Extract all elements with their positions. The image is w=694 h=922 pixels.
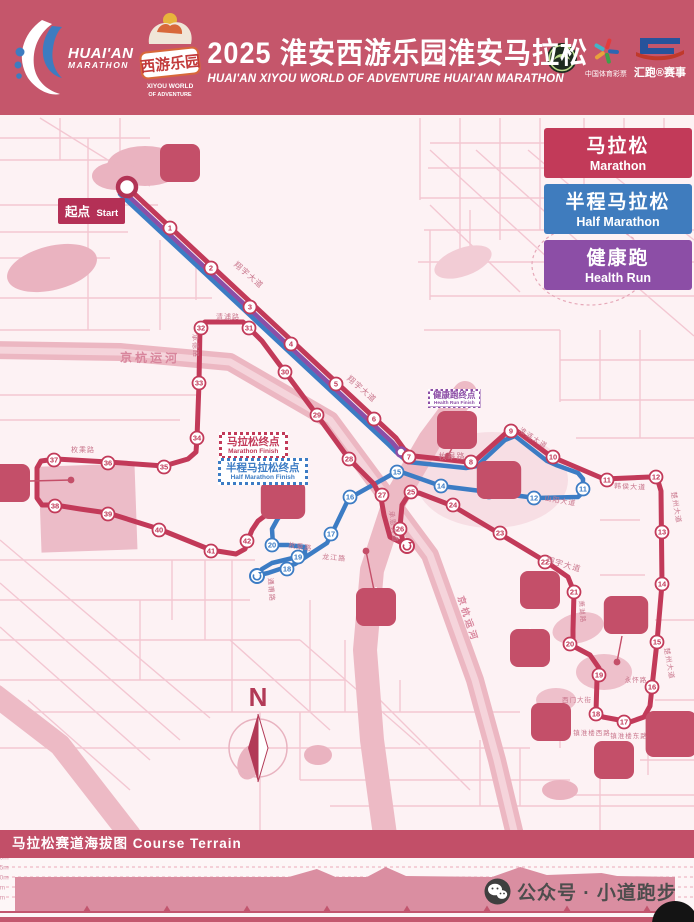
svg-text:24: 24 — [449, 501, 458, 510]
logo-line1: HUAI'AN — [68, 46, 133, 61]
xiyou-name-en2: OF ADVENTURE — [149, 92, 193, 98]
start-point — [118, 178, 136, 196]
event-title-en: HUAI'AN XIYOU WORLD OF ADVENTURE HUAI'AN… — [207, 73, 539, 85]
legend-marathon-cn: 马拉松 — [544, 131, 692, 158]
terrain-section: 马拉松赛道海拔图 Course Terrain 20m15m10m5m0m 公众… — [0, 830, 694, 922]
start-label: 起点 Start — [58, 198, 125, 224]
legend-health-cn: 健康跑 — [544, 243, 692, 270]
legend-health-run: 健康跑 Health Run — [544, 240, 692, 290]
km-marker-24: 24 — [447, 499, 460, 512]
bottom-strip — [0, 917, 694, 922]
km-marker-31: 31 — [243, 322, 256, 335]
km-marker-20: 20 — [266, 539, 279, 552]
svg-text:29: 29 — [313, 411, 321, 420]
km-marker-8: 8 — [465, 456, 478, 469]
svg-text:13: 13 — [658, 528, 666, 537]
sports-lottery-logo: 中国体育彩票 — [585, 37, 627, 79]
route-legend: 马拉松 Marathon 半程马拉松 Half Marathon 健康跑 Hea… — [544, 128, 692, 296]
km-marker-39: 39 — [102, 508, 115, 521]
km-marker-6: 6 — [368, 413, 381, 426]
svg-text:15: 15 — [653, 638, 661, 647]
sports-lottery-icon — [589, 37, 623, 67]
svg-text:39: 39 — [104, 510, 112, 519]
km-marker-2: 2 — [205, 262, 218, 275]
svg-text:18: 18 — [283, 565, 291, 574]
km-marker-14: 14 — [656, 578, 669, 591]
svg-text:19: 19 — [595, 671, 603, 680]
huaian-marathon-logo: HUAI'AN MARATHON — [8, 12, 133, 104]
huipao-label: 汇跑®赛事 — [634, 64, 686, 80]
header-banner: HUAI'AN MARATHON 西游乐园 XIYOU WORLD OF ADV… — [0, 0, 694, 115]
km-marker-19: 19 — [292, 551, 305, 564]
legend-half-en: Half Marathon — [544, 215, 692, 229]
km-marker-15: 15 — [651, 636, 664, 649]
km-marker-3: 3 — [244, 301, 257, 314]
road-label: 永怀路 — [625, 675, 648, 684]
km-marker-21: 21 — [568, 586, 581, 599]
svg-text:20: 20 — [268, 541, 276, 550]
svg-text:1: 1 — [168, 224, 172, 233]
km-marker-16: 16 — [344, 491, 357, 504]
km-marker-1: 1 — [164, 222, 177, 235]
terrain-title: 马拉松赛道海拔图 Course Terrain — [0, 830, 694, 858]
svg-text:36: 36 — [104, 459, 112, 468]
legend-half-cn: 半程马拉松 — [544, 187, 692, 214]
km-marker-34: 34 — [191, 432, 204, 445]
svg-text:8: 8 — [469, 458, 473, 467]
half-finish-cn: 半程马拉松终点 — [226, 462, 300, 474]
svg-text:23: 23 — [496, 529, 504, 538]
svg-text:17: 17 — [327, 530, 335, 539]
health-finish-cn: 健康跑终点 — [433, 391, 476, 401]
svg-text:41: 41 — [207, 547, 215, 556]
km-marker-38: 38 — [49, 500, 62, 513]
km-marker-36: 36 — [102, 457, 115, 470]
terrain-tick-label: 20m — [0, 858, 9, 862]
svg-text:18: 18 — [592, 710, 600, 719]
huipao-logo: 汇跑®赛事 — [634, 36, 686, 80]
km-marker-18: 18 — [281, 563, 294, 576]
svg-text:16: 16 — [648, 683, 656, 692]
svg-text:11: 11 — [579, 485, 587, 494]
svg-text:7: 7 — [407, 453, 411, 462]
km-marker-42: 42 — [241, 535, 254, 548]
svg-text:27: 27 — [378, 491, 386, 500]
start-label-cn: 起点 — [65, 205, 90, 219]
svg-text:37: 37 — [50, 456, 58, 465]
legend-marathon-en: Marathon — [544, 159, 692, 173]
terrain-tick-label: 10m — [0, 875, 9, 882]
km-marker-19: 19 — [593, 669, 606, 682]
km-marker-12: 12 — [528, 492, 541, 505]
km-marker-37: 37 — [48, 454, 61, 467]
km-marker-15: 15 — [391, 466, 404, 479]
start-label-en: Start — [96, 208, 118, 219]
svg-text:33: 33 — [195, 379, 203, 388]
km-marker-9: 9 — [505, 425, 518, 438]
svg-text:30: 30 — [281, 368, 289, 377]
road-label: 京杭运河 — [120, 349, 180, 365]
km-marker-14: 14 — [435, 480, 448, 493]
svg-text:16: 16 — [346, 493, 354, 502]
event-title-cn: 2025 淮安西游乐园淮安马拉松 — [207, 29, 539, 71]
course-map: 1234567891011121314151617181920212223242… — [0, 115, 694, 830]
svg-text:5: 5 — [334, 380, 338, 389]
km-marker-29: 29 — [311, 409, 324, 422]
terrain-tick-label: 0m — [0, 895, 5, 902]
km-marker-41: 41 — [205, 545, 218, 558]
km-marker-11: 11 — [601, 474, 614, 487]
svg-text:2: 2 — [209, 264, 213, 273]
svg-text:32: 32 — [197, 324, 205, 333]
km-marker-13: 13 — [656, 526, 669, 539]
svg-text:17: 17 — [620, 718, 628, 727]
road-label: 镇淮楼西路 — [573, 728, 611, 737]
km-marker-11: 11 — [577, 483, 590, 496]
road-label: 枚乘路 — [71, 445, 95, 454]
compass-letter: N — [249, 682, 268, 712]
km-marker-7: 7 — [403, 451, 416, 464]
km-marker-16: 16 — [646, 681, 659, 694]
runner-swoosh-icon — [8, 12, 66, 104]
svg-text:34: 34 — [193, 434, 202, 443]
half-turnaround-icon — [250, 569, 264, 583]
road-label: 西门大街 — [562, 695, 592, 704]
svg-text:38: 38 — [51, 502, 59, 511]
svg-text:6: 6 — [372, 415, 376, 424]
svg-text:25: 25 — [407, 488, 415, 497]
health-finish-en: Health Run Finish — [433, 401, 476, 406]
km-marker-10: 10 — [547, 451, 560, 464]
svg-text:15: 15 — [393, 468, 401, 477]
legend-marathon: 马拉松 Marathon — [544, 128, 692, 178]
wechat-icon — [484, 878, 511, 905]
km-marker-20: 20 — [564, 638, 577, 651]
km-marker-27: 27 — [376, 489, 389, 502]
half-finish-en: Half Marathon Finish — [226, 474, 300, 481]
svg-text:42: 42 — [243, 537, 251, 546]
svg-text:28: 28 — [345, 455, 353, 464]
svg-text:35: 35 — [160, 463, 168, 472]
km-marker-32: 32 — [195, 322, 208, 335]
km-marker-40: 40 — [153, 524, 166, 537]
xiyou-name-en1: XIYOU WORLD — [147, 83, 194, 90]
marathon-finish-en: Marathon Finish — [227, 448, 280, 455]
svg-text:14: 14 — [658, 580, 667, 589]
svg-text:20: 20 — [566, 640, 574, 649]
xiyou-world-logo: 西游乐园 XIYOU WORLD OF ADVENTURE — [137, 10, 203, 106]
svg-text:12: 12 — [530, 494, 538, 503]
svg-text:31: 31 — [245, 324, 253, 333]
marathon-finish-label: 马拉松终点 Marathon Finish — [219, 432, 288, 459]
terrain-tick-label: 5m — [0, 885, 5, 892]
km-marker-5: 5 — [330, 378, 343, 391]
huipao-icon — [634, 36, 686, 62]
road-label: 镇淮楼东路 — [610, 731, 648, 740]
logo-line2: MARATHON — [68, 61, 133, 70]
km-marker-33: 33 — [193, 377, 206, 390]
svg-text:40: 40 — [155, 526, 163, 535]
km-marker-17: 17 — [325, 528, 338, 541]
legend-health-en: Health Run — [544, 271, 692, 285]
km-marker-23: 23 — [494, 527, 507, 540]
marathon-finish-cn: 马拉松终点 — [227, 436, 280, 448]
terrain-tick-label: 15m — [0, 865, 9, 872]
watermark-text: 公众号 · 小道跑步 — [517, 878, 677, 905]
svg-text:21: 21 — [570, 588, 578, 597]
svg-text:12: 12 — [652, 473, 660, 482]
huaian-marathon-wordmark: HUAI'AN MARATHON — [68, 46, 133, 70]
road-label: 枚皋路 — [439, 451, 466, 461]
road-label: 清浦路 — [216, 312, 240, 321]
svg-text:10: 10 — [549, 453, 557, 462]
km-marker-25: 25 — [405, 486, 418, 499]
event-title: 2025 淮安西游乐园淮安马拉松 HUAI'AN XIYOU WORLD OF … — [207, 31, 539, 85]
svg-text:14: 14 — [437, 482, 446, 491]
svg-text:11: 11 — [603, 476, 611, 485]
km-marker-18: 18 — [590, 708, 603, 721]
km-marker-12: 12 — [650, 471, 663, 484]
svg-text:3: 3 — [248, 303, 252, 312]
svg-text:9: 9 — [509, 427, 513, 436]
svg-text:19: 19 — [294, 553, 302, 562]
marathon-turnaround-icon — [400, 539, 414, 553]
legend-half-marathon: 半程马拉松 Half Marathon — [544, 184, 692, 234]
km-marker-4: 4 — [285, 338, 298, 351]
health-run-finish-label: 健康跑终点 Health Run Finish — [428, 389, 481, 408]
poster: HUAI'AN MARATHON 西游乐园 XIYOU WORLD OF ADV… — [0, 0, 694, 922]
half-marathon-finish-label: 半程马拉松终点 Half Marathon Finish — [218, 458, 308, 485]
km-marker-35: 35 — [158, 461, 171, 474]
sports-lottery-label: 中国体育彩票 — [585, 69, 627, 79]
km-marker-28: 28 — [343, 453, 356, 466]
km-marker-30: 30 — [279, 366, 292, 379]
km-marker-17: 17 — [618, 716, 631, 729]
watermark: 公众号 · 小道跑步 — [484, 878, 677, 905]
